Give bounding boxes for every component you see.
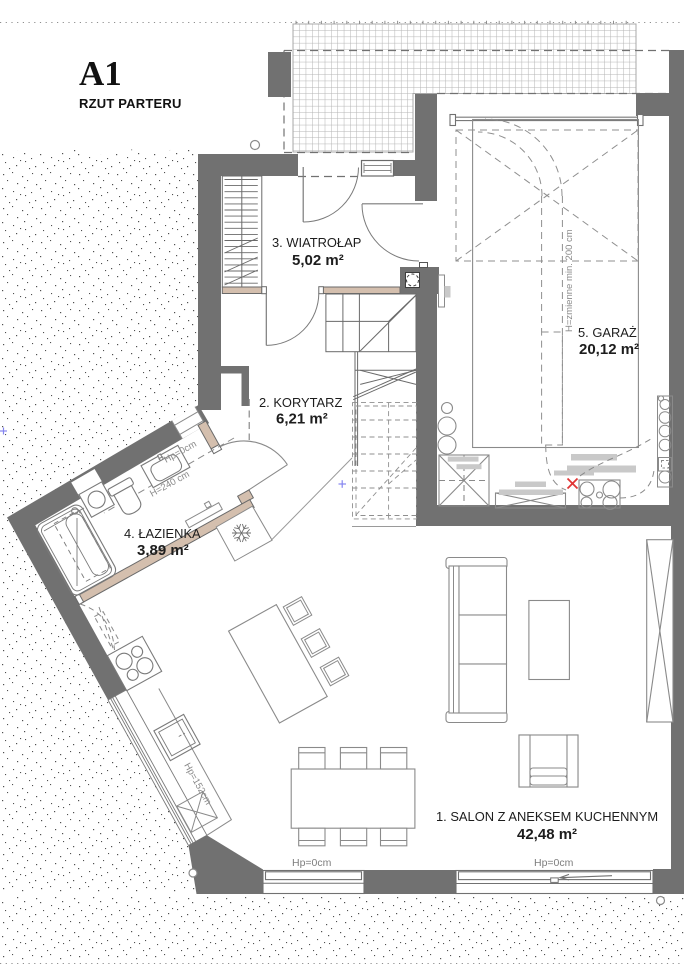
svg-text:RZUT PARTERU: RZUT PARTERU — [79, 96, 182, 111]
svg-text:Hp=0cm: Hp=0cm — [534, 857, 574, 869]
svg-text:20,12 m²: 20,12 m² — [579, 341, 639, 358]
svg-text:5. GARAŻ: 5. GARAŻ — [578, 325, 637, 340]
svg-text:4. ŁAZIENKA: 4. ŁAZIENKA — [124, 526, 201, 541]
svg-text:3. WIATROŁAP: 3. WIATROŁAP — [272, 235, 361, 250]
svg-text:2. KORYTARZ: 2. KORYTARZ — [259, 395, 342, 410]
svg-text:1. SALON Z ANEKSEM KUCHENNYM: 1. SALON Z ANEKSEM KUCHENNYM — [436, 809, 658, 824]
svg-text:H=zmienne min. 200 cm: H=zmienne min. 200 cm — [564, 229, 575, 332]
svg-text:5,02 m²: 5,02 m² — [292, 252, 344, 269]
svg-text:A1: A1 — [79, 54, 122, 93]
svg-text:3,89 m²: 3,89 m² — [137, 542, 189, 559]
svg-text:Hp=0cm: Hp=0cm — [292, 857, 332, 869]
svg-text:42,48 m²: 42,48 m² — [517, 826, 577, 843]
svg-text:6,21 m²: 6,21 m² — [276, 411, 328, 428]
